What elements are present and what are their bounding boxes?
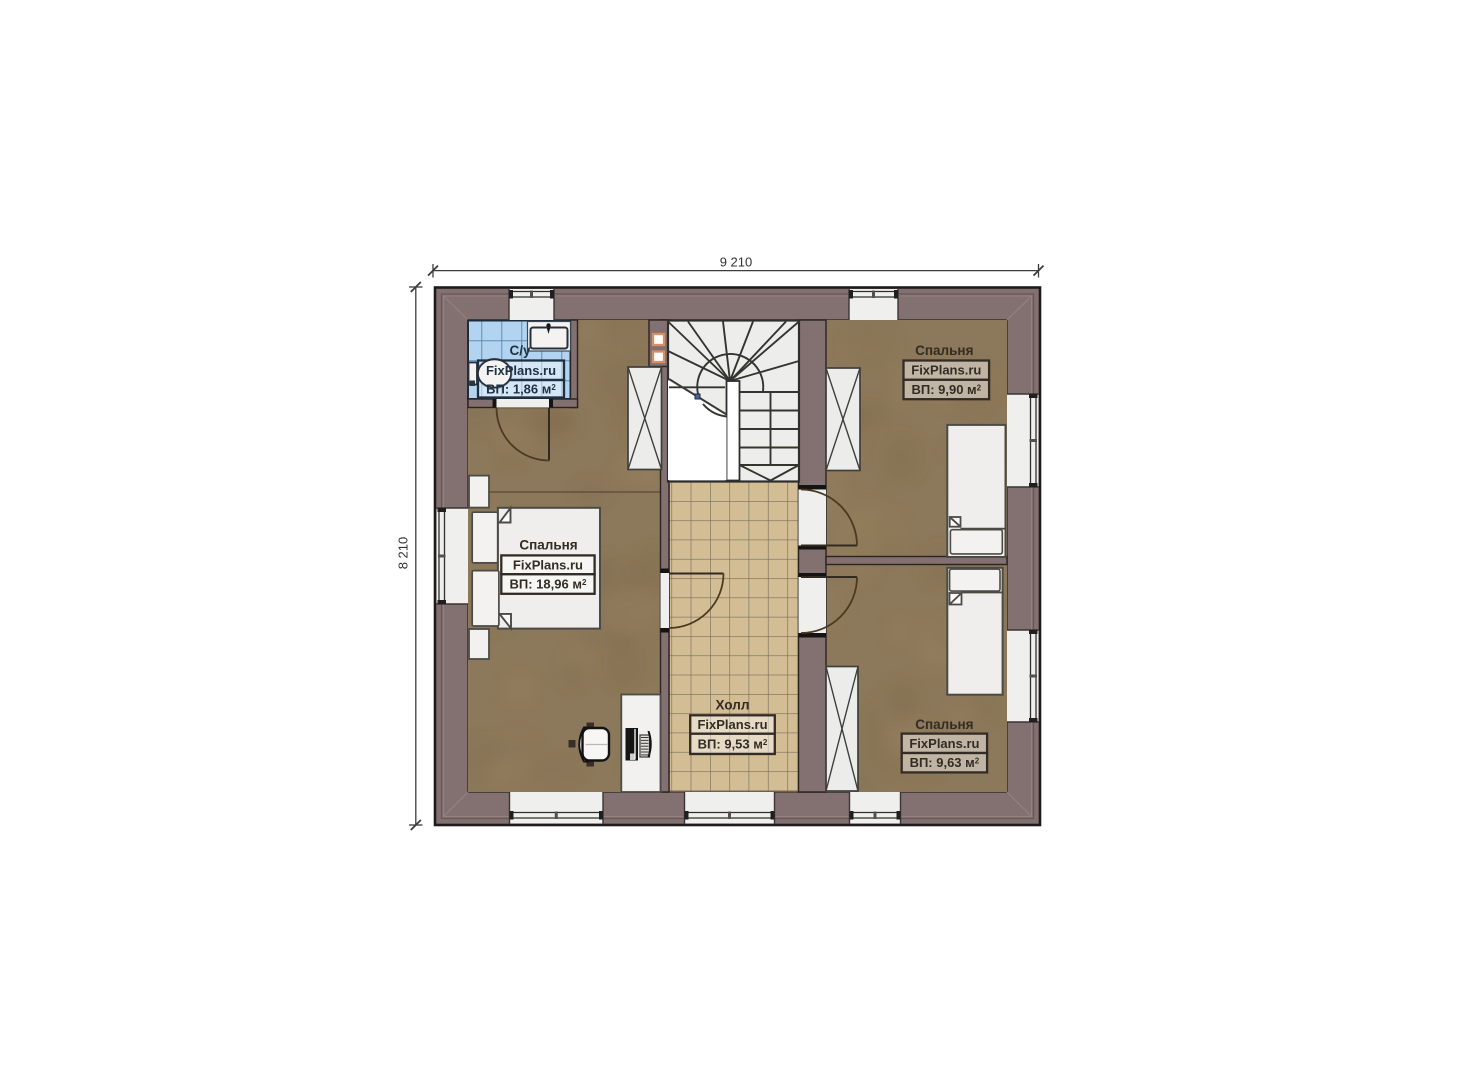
svg-text:FixPlans.ru: FixPlans.ru <box>486 363 556 378</box>
svg-text:ВП: 18,96 м2: ВП: 18,96 м2 <box>510 577 587 592</box>
svg-text:Спальня: Спальня <box>915 343 973 358</box>
svg-text:FixPlans.ru: FixPlans.ru <box>911 363 981 378</box>
svg-text:Холл: Холл <box>716 698 750 713</box>
svg-text:FixPlans.ru: FixPlans.ru <box>513 557 583 572</box>
svg-text:Спальня: Спальня <box>519 538 577 553</box>
svg-text:ВП: 9,63 м2: ВП: 9,63 м2 <box>910 755 980 770</box>
svg-text:9 210: 9 210 <box>720 255 753 270</box>
svg-text:Спальня: Спальня <box>915 717 973 732</box>
svg-text:ВП: 9,53 м2: ВП: 9,53 м2 <box>698 736 768 751</box>
svg-text:FixPlans.ru: FixPlans.ru <box>697 717 767 732</box>
svg-text:С/у: С/у <box>509 343 531 358</box>
svg-text:ВП: 1,86 м2: ВП: 1,86 м2 <box>486 381 556 396</box>
svg-text:8 210: 8 210 <box>396 537 411 570</box>
svg-text:ВП: 9,90 м2: ВП: 9,90 м2 <box>911 382 981 397</box>
svg-text:FixPlans.ru: FixPlans.ru <box>909 736 979 751</box>
